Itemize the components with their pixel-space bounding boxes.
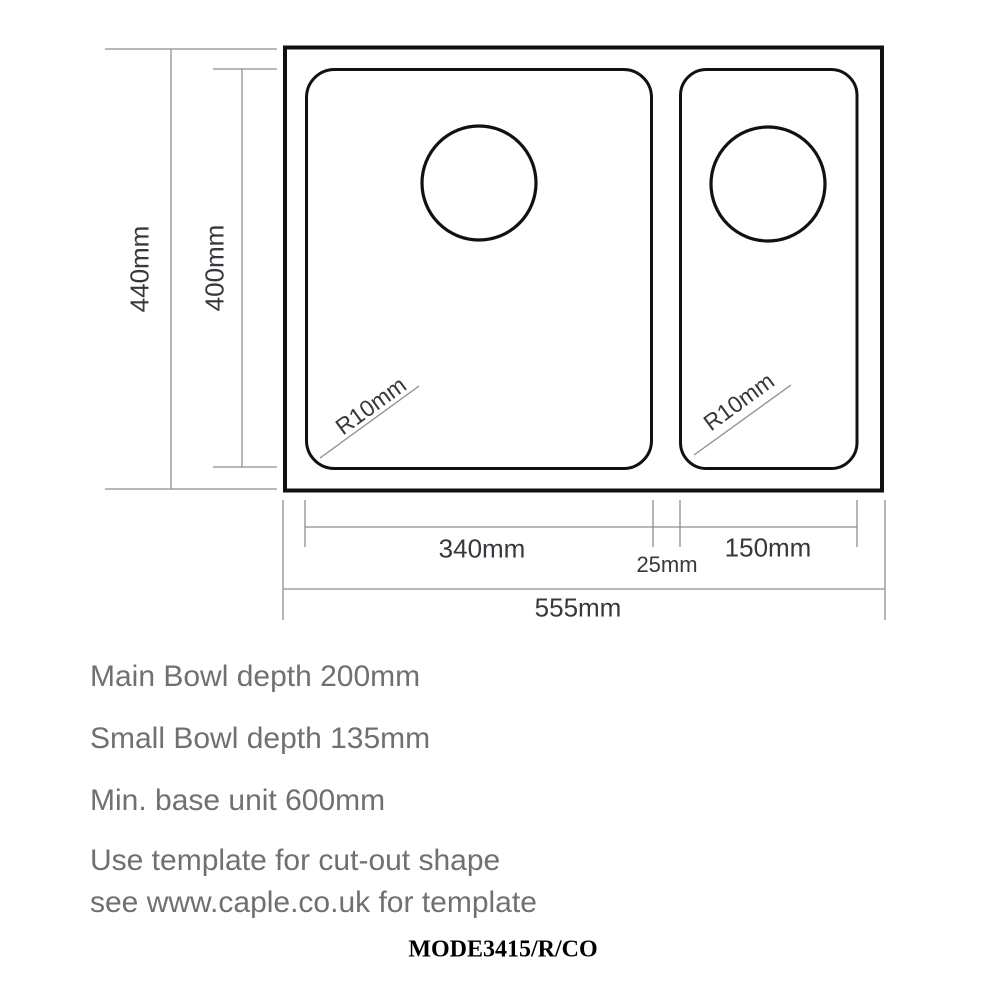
small-bowl-width-label: 150mm [725, 533, 812, 564]
note-template-line-1: Use template for cut-out shape [90, 846, 500, 876]
sink-outer-outline [285, 48, 882, 491]
note-small-bowl-depth: Small Bowl depth 135mm [90, 724, 430, 754]
sink-dimension-drawing: 440mm 400mm 340mm 25mm 150mm 555mm R10mm… [0, 0, 1000, 1000]
main-bowl-width-label: 340mm [439, 534, 526, 565]
note-min-base-unit: Min. base unit 600mm [90, 786, 385, 816]
note-main-bowl-depth: Main Bowl depth 200mm [90, 662, 420, 692]
overall-depth-label: 440mm [125, 226, 156, 313]
note-template-line-2: see www.caple.co.uk for template [90, 888, 537, 918]
bowl-depth-label: 400mm [200, 225, 231, 312]
bowl-gap-label: 25mm [636, 552, 697, 578]
small-bowl-drain-circle [711, 127, 825, 241]
model-code: MODE3415/R/CO [408, 937, 597, 964]
main-bowl-drain-circle [422, 126, 536, 240]
overall-width-label: 555mm [535, 593, 622, 624]
